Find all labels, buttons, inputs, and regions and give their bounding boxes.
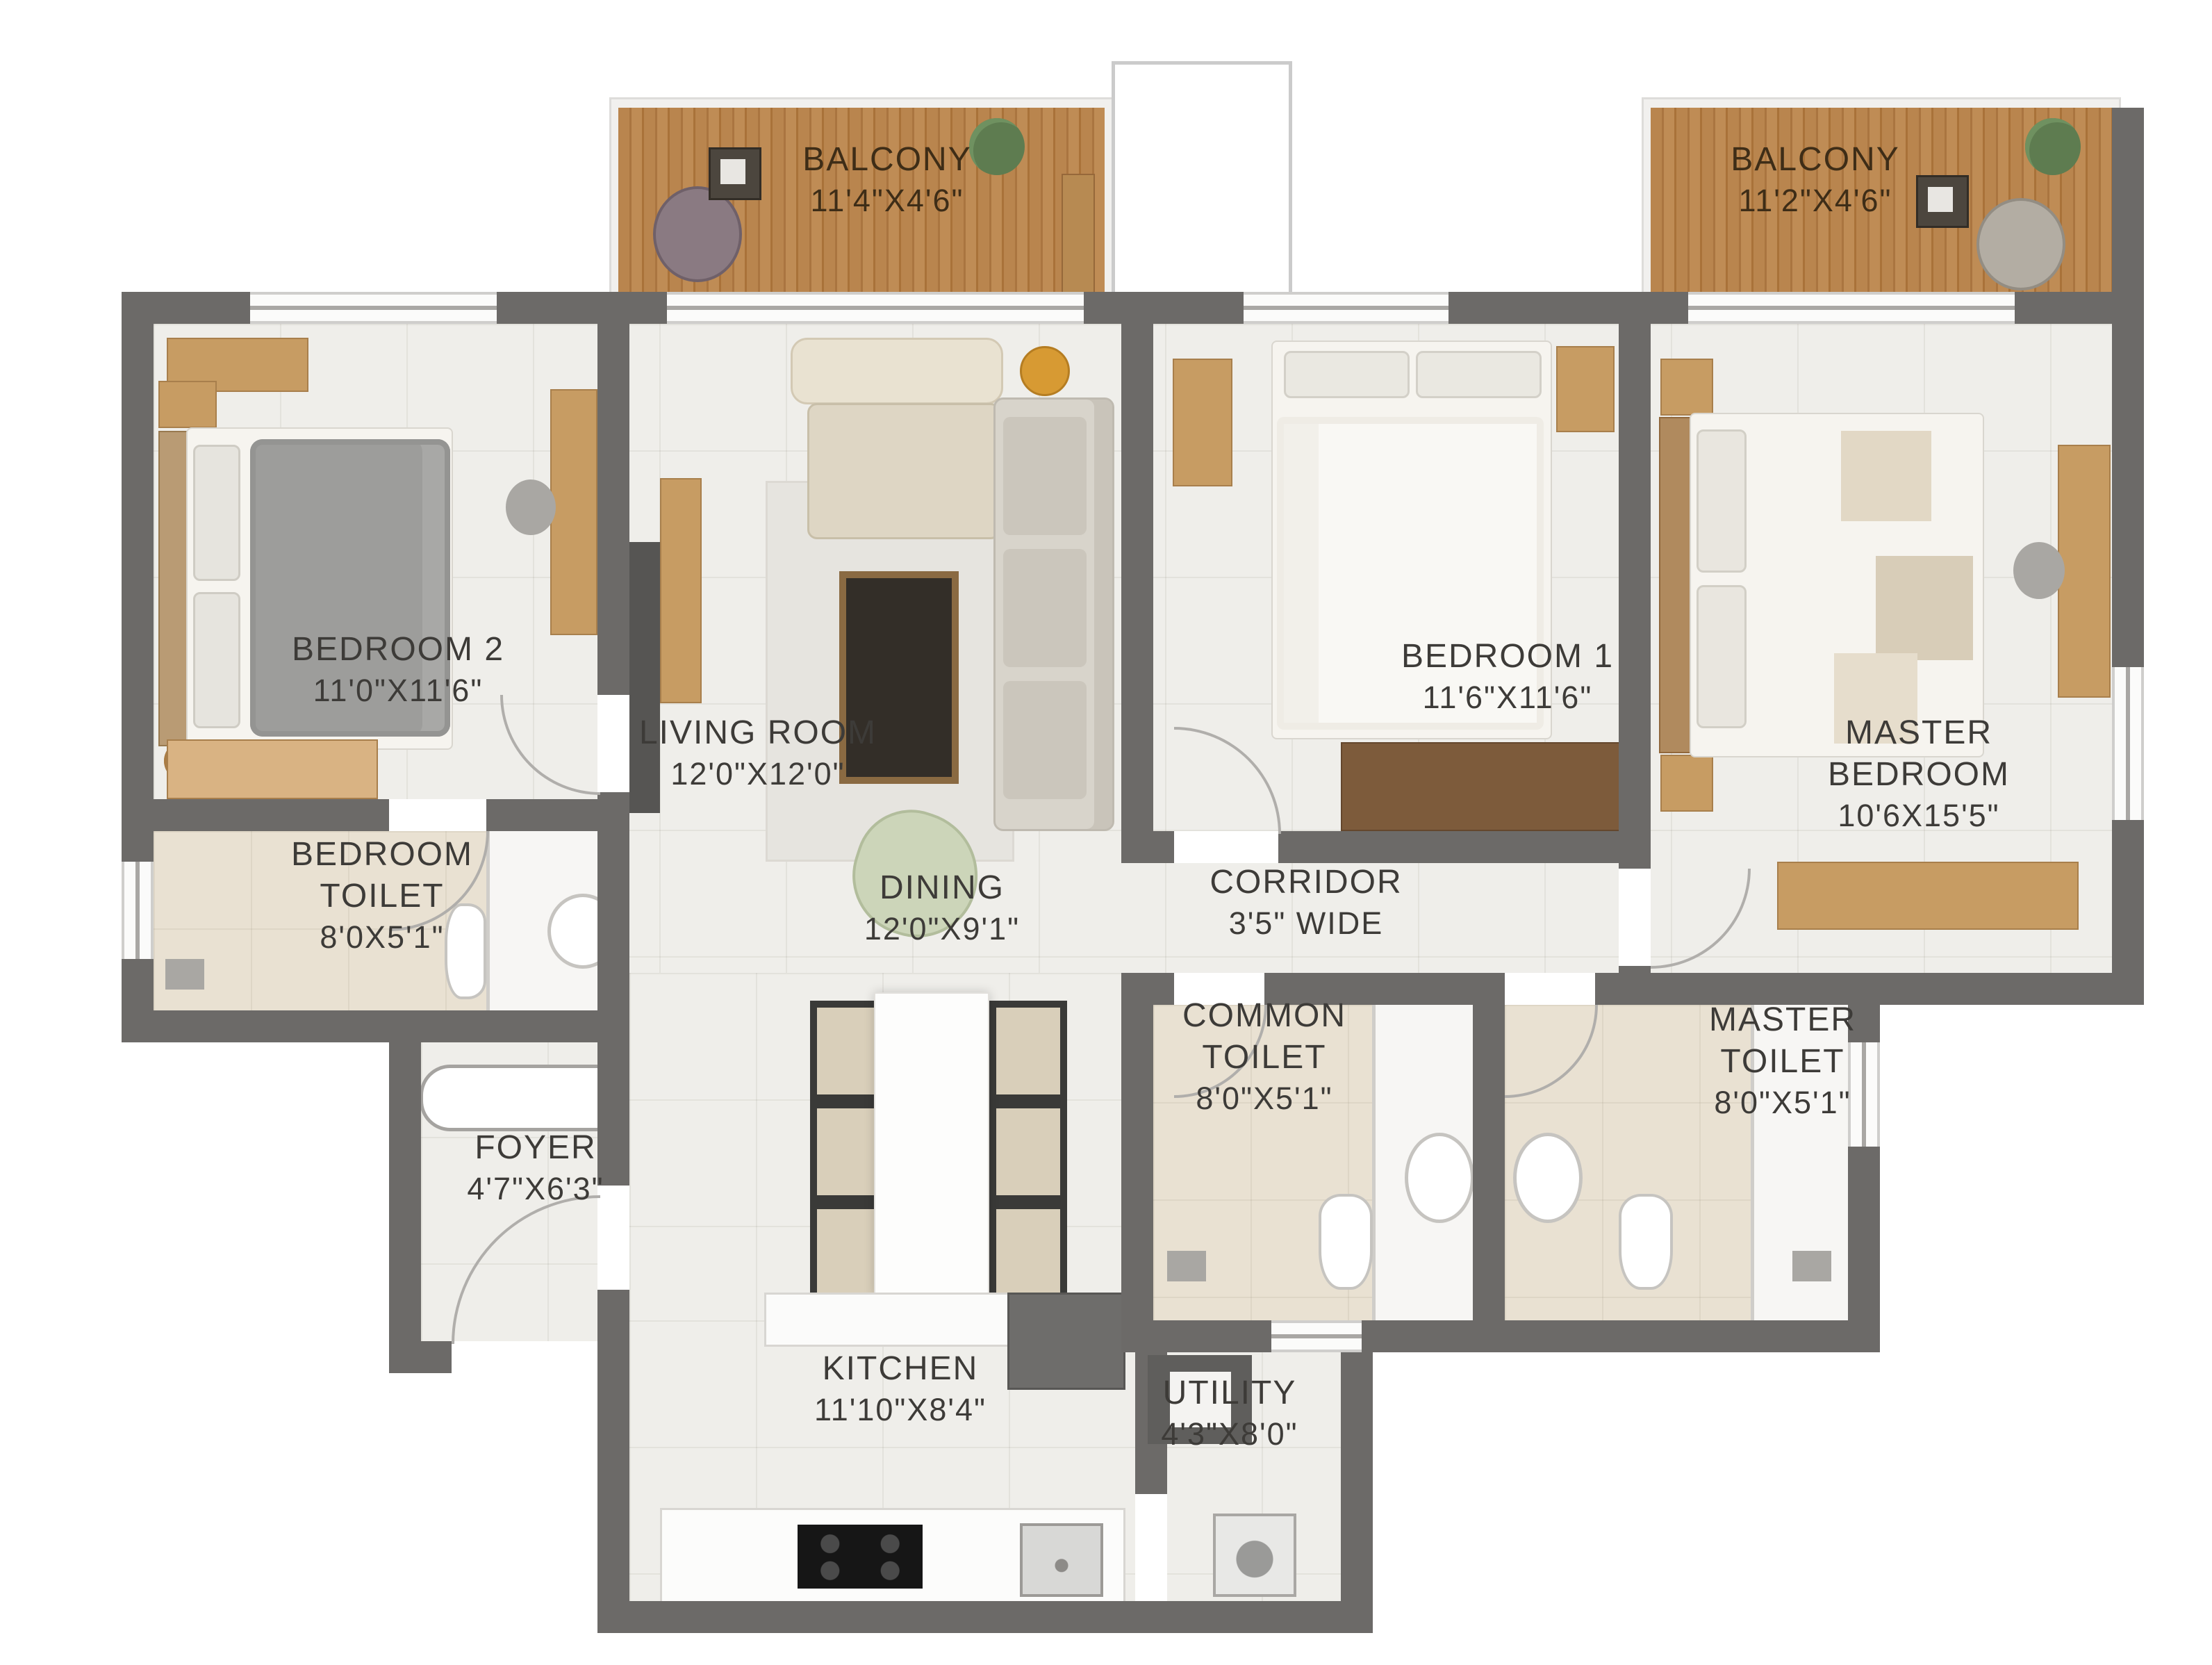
window-master-bedroom [2112,667,2144,820]
terrace-void [1112,61,1292,302]
dining-table [874,992,989,1295]
master-duvet-patch [1876,556,1973,660]
room-dims: 11'0"X11'6" [224,671,572,711]
room-name: COMMON TOILET [1153,995,1376,1078]
bedroom-toilet-shower-icon [165,959,204,990]
living-side-table [1020,346,1070,396]
kitchen-sink [1020,1523,1103,1597]
living-sofa-cushion [1003,549,1087,667]
label-bedroom-1: BEDROOM 1 11'6"X11'6" [1334,636,1681,718]
room-name: FOYER [362,1127,709,1169]
wall [1121,1320,1880,1352]
wall [497,292,667,324]
wall [486,799,629,831]
master-pillow [1697,585,1747,728]
door-gap-bedroom1 [1174,831,1278,863]
wall [1084,292,1244,324]
common-toilet-basin [1405,1133,1474,1223]
door-gap-bedroom-toilet [389,799,486,831]
room-dims: 10'6X15'5" [1783,796,2054,836]
master-chair [2013,542,2065,599]
bedroom2-desk [550,389,597,635]
window-bedroom1 [1244,292,1448,324]
label-living-room: LIVING ROOM 12'0"X12'0" [584,712,932,794]
window-bedroom2 [250,292,497,324]
bedroom1-pillow [1416,351,1542,398]
room-name: LIVING ROOM [584,712,932,754]
wall [1473,1005,1505,1320]
master-desk [2058,445,2111,698]
wall [1448,292,1688,324]
door-gap-master-toilet [1505,973,1595,1005]
label-master-bedroom: MASTER BEDROOM 10'6X15'5" [1783,712,2054,836]
wall [1619,324,1651,869]
master-toilet-basin [1513,1133,1583,1223]
wall [1121,324,1153,831]
master-dresser [1777,862,2079,930]
room-name: BALCONY [713,139,1061,181]
master-toilet-wc [1619,1194,1673,1290]
room-name: MASTER BEDROOM [1783,712,2054,796]
bedroom2-chair [506,479,556,535]
door-gap-entry [452,1341,597,1373]
bedroom2-bed-headboard [158,431,189,746]
master-toilet-fittings [1792,1251,1831,1281]
wall [2112,108,2144,1005]
room-name: CORRIDOR [1132,862,1480,903]
room-dims: 4'3"X8'0" [1056,1414,1403,1454]
bedroom1-side-table [1556,346,1615,432]
living-sofa-cushion [1003,681,1087,799]
common-toilet-fittings [1167,1251,1206,1281]
floor-plan: BALCONY 11'4"X4'6" BALCONY 11'2"X4'6" BE… [0,0,2212,1665]
sliding-door-master-balcony [1688,292,2015,324]
wall [122,292,250,324]
window-bedroom-toilet [122,862,154,959]
label-bedroom-2: BEDROOM 2 11'0"X11'6" [224,629,572,711]
room-name: UTILITY [1056,1372,1403,1414]
label-balcony-left: BALCONY 11'4"X4'6" [713,139,1061,221]
room-dims: 8'0X5'1" [278,917,486,958]
living-console [791,338,1003,404]
wall [597,1601,1373,1633]
wall [1278,831,1651,863]
room-name: MASTER TOILET [1672,999,1894,1083]
sliding-door-living-balcony [667,292,1084,324]
bedroom2-wardrobe [167,739,378,799]
label-utility: UTILITY 4'3"X8'0" [1056,1372,1403,1454]
wall [1121,1005,1153,1320]
room-dims: 12'0"X12'0" [584,754,932,794]
room-dims: 11'6"X11'6" [1334,678,1681,718]
window-common-toilet [1271,1320,1362,1352]
room-dims: 12'0"X9'1" [768,909,1116,949]
room-name: BEDROOM TOILET [278,834,486,917]
wall [597,324,629,695]
room-name: BEDROOM 2 [224,629,572,671]
room-name: BEDROOM 1 [1334,636,1681,678]
room-dims: 3'5" WIDE [1132,903,1480,944]
room-dims: 8'0"X5'1" [1672,1083,1894,1123]
foyer-console [420,1065,627,1131]
balcony-right-chair [1976,198,2065,290]
room-name: KITCHEN [727,1348,1074,1390]
opening-kitchen-utility [1135,1494,1167,1601]
balcony-right-plant-icon [2025,118,2081,175]
wall [122,1010,629,1042]
balcony-left-ladder [1062,174,1095,302]
utility-washer [1213,1514,1296,1597]
label-corridor: CORRIDOR 3'5" WIDE [1132,862,1480,944]
master-pillow [1697,429,1747,573]
common-toilet-wc [1319,1194,1373,1290]
kitchen-hob [798,1525,923,1589]
master-nightstand [1660,359,1713,416]
label-master-toilet: MASTER TOILET 8'0"X5'1" [1672,999,1894,1123]
label-bedroom-toilet: BEDROOM TOILET 8'0X5'1" [278,834,486,958]
wall [389,1341,452,1373]
bedroom2-pillow [193,445,240,581]
label-dining: DINING 12'0"X9'1" [768,867,1116,949]
wall [597,1290,629,1633]
bedroom2-nightstand [158,381,217,428]
label-balcony-right: BALCONY 11'2"X4'6" [1642,139,1989,221]
living-sofa-cushion [1003,417,1087,535]
dining-chair [989,1001,1067,1101]
living-sofa-chaise [807,403,1000,539]
dining-chair [989,1202,1067,1303]
door-gap-master-bedroom [1619,869,1651,966]
room-dims: 8'0"X5'1" [1153,1078,1376,1119]
living-sideboard [660,478,702,703]
kitchen-counter-top [764,1293,1012,1347]
room-dims: 11'10"X8'4" [727,1390,1074,1430]
room-dims: 4'7"X6'3" [362,1169,709,1209]
label-kitchen: KITCHEN 11'10"X8'4" [727,1348,1074,1430]
room-name: BALCONY [1642,139,1989,181]
master-nightstand [1660,755,1713,812]
room-dims: 11'2"X4'6" [1642,181,1989,221]
wall [1121,831,1174,863]
label-common-toilet: COMMON TOILET 8'0"X5'1" [1153,995,1376,1119]
wall [122,799,389,831]
master-duvet-patch [1841,431,1931,521]
bedroom1-side-table [1173,359,1232,486]
label-foyer: FOYER 4'7"X6'3" [362,1127,709,1209]
room-name: DINING [768,867,1116,909]
bedroom1-pillow [1284,351,1410,398]
room-dims: 11'4"X4'6" [713,181,1061,221]
dining-chair [989,1101,1067,1202]
bedroom1-wardrobe [1341,742,1621,831]
